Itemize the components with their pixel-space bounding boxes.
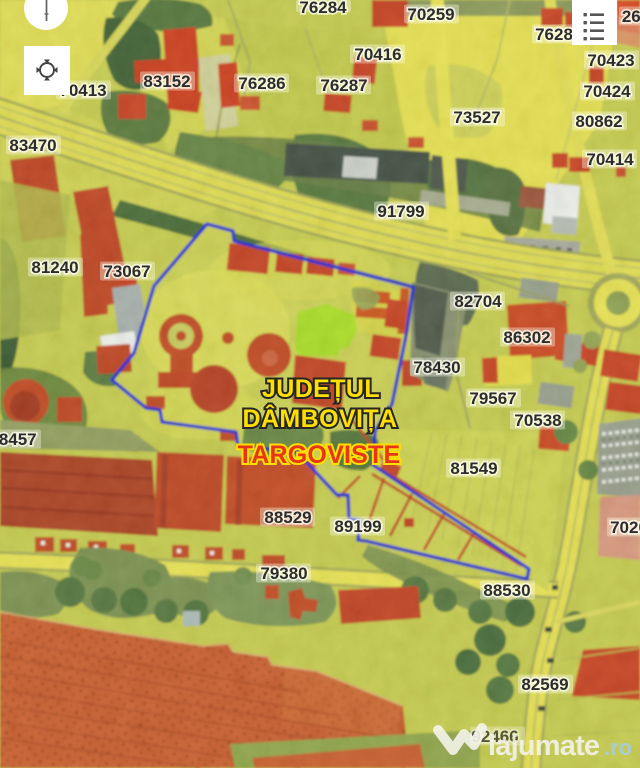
svg-text:78430: 78430 [413,358,460,377]
svg-text:88457: 88457 [0,430,37,449]
svg-text:JUDEȚUL: JUDEȚUL [262,375,380,403]
svg-text:88529: 88529 [264,508,311,527]
svg-text:70416: 70416 [354,45,401,64]
svg-text:7020: 7020 [610,518,640,537]
svg-text:80862: 80862 [575,112,622,131]
svg-text:7628: 7628 [535,25,573,44]
svg-text:89199: 89199 [334,517,381,536]
svg-text:79380: 79380 [260,564,307,583]
svg-text:lajumate: lajumate [488,730,600,762]
svg-text:79567: 79567 [469,389,516,408]
svg-text:70414: 70414 [586,150,634,169]
svg-text:TARGOVISTE: TARGOVISTE [238,441,401,469]
svg-text:81240: 81240 [31,258,78,277]
svg-text:76286: 76286 [238,74,285,93]
svg-text:.ro: .ro [604,735,632,760]
svg-text:70423: 70423 [587,51,634,70]
svg-text:70424: 70424 [583,82,631,101]
svg-text:83152: 83152 [143,72,190,91]
svg-text:DÂMBOVIȚA: DÂMBOVIȚA [243,403,398,433]
svg-text:91799: 91799 [377,202,424,221]
svg-text:82704: 82704 [454,292,502,311]
svg-text:81549: 81549 [450,459,497,478]
svg-text:86302: 86302 [503,328,550,347]
svg-text:70538: 70538 [514,411,561,430]
svg-text:73067: 73067 [103,262,150,281]
svg-text:83470: 83470 [9,136,56,155]
svg-text:266: 266 [622,7,640,26]
svg-text:82569: 82569 [521,675,568,694]
svg-text:76284: 76284 [299,0,347,17]
svg-text:70259: 70259 [407,5,454,24]
svg-text:88530: 88530 [483,581,530,600]
svg-text:73527: 73527 [453,108,500,127]
svg-text:76287: 76287 [320,76,367,95]
